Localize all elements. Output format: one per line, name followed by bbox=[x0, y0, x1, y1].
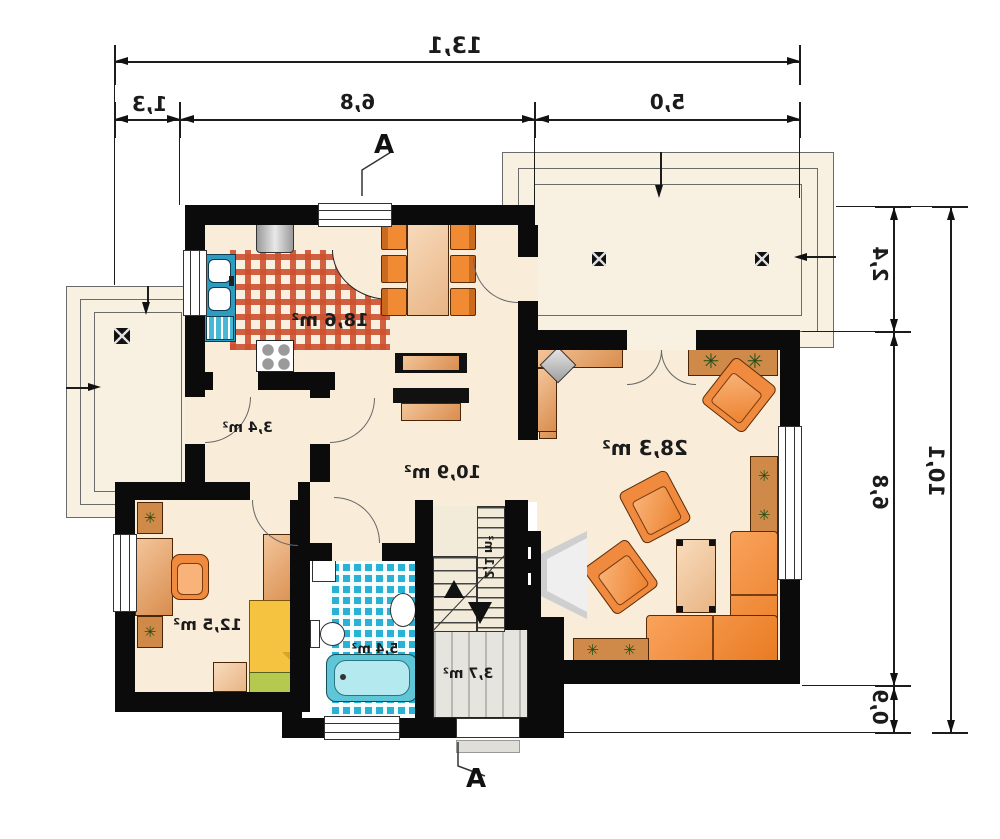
dining-chair bbox=[450, 288, 476, 316]
plant-box: ✳ bbox=[137, 502, 163, 534]
living-area-label: 28,3 m² bbox=[595, 436, 695, 460]
dim-line-top-segments bbox=[115, 119, 800, 121]
dim-line-right-segments bbox=[893, 207, 895, 733]
door-gap bbox=[332, 543, 382, 561]
dim-arrow bbox=[115, 57, 128, 65]
plant-icon: ✳ bbox=[623, 643, 636, 658]
stair-landing bbox=[433, 506, 477, 558]
arrow-left-icon bbox=[794, 253, 807, 261]
dim-arrow bbox=[167, 115, 180, 123]
dim-extension-line bbox=[802, 331, 875, 332]
bathtub-drain bbox=[340, 674, 346, 680]
sideboard-top bbox=[403, 356, 459, 370]
wall-living-top bbox=[535, 330, 627, 350]
dim-arrow bbox=[522, 115, 535, 123]
stair-up-arrow-icon bbox=[444, 580, 464, 598]
dim-top-segment-label: 5,0 bbox=[630, 90, 705, 114]
table-knob bbox=[677, 540, 683, 546]
stair-down-arrow-icon bbox=[468, 602, 492, 624]
bedroom-area-label: 12,5 m² bbox=[160, 615, 255, 634]
vestibule-area-label: 3,7 m² bbox=[432, 666, 504, 682]
dim-arrow bbox=[947, 720, 955, 733]
dim-top-segment-label: 1,3 bbox=[122, 92, 177, 116]
wall-wing-bottom bbox=[115, 692, 302, 712]
dim-top-total-label: 13,1 bbox=[415, 34, 495, 59]
terrace-post-icon bbox=[592, 252, 606, 266]
window bbox=[318, 203, 392, 227]
plant-icon: ✳ bbox=[144, 625, 157, 640]
stairs-area-label: 2,1 m² bbox=[482, 535, 496, 579]
dim-line-top-total bbox=[115, 61, 800, 63]
floor-plan: ✳ ✳ ✳ ✳ ✳ ✳ ✳ ✳ bbox=[0, 0, 1000, 839]
hall-floor bbox=[310, 482, 332, 543]
dim-arrow bbox=[890, 333, 898, 346]
wall-living-top bbox=[696, 330, 800, 350]
dim-right-segment-label: 2,4 bbox=[868, 239, 892, 289]
table-knob bbox=[709, 606, 715, 612]
window bbox=[183, 250, 207, 316]
faucet-icon bbox=[229, 276, 234, 286]
door-gap bbox=[213, 372, 258, 390]
plant-box: ✳ ✳ bbox=[573, 638, 649, 662]
terrace-arrow-line bbox=[660, 152, 662, 186]
terrace-post-icon bbox=[755, 252, 769, 266]
coffee-table bbox=[676, 539, 716, 613]
cabinet bbox=[393, 388, 469, 403]
dining-chair bbox=[381, 255, 407, 283]
stove bbox=[256, 340, 294, 372]
section-marker-bottom: A bbox=[466, 764, 486, 794]
arrow-down-icon bbox=[655, 185, 663, 198]
dim-extension-line bbox=[534, 138, 535, 205]
dim-arrow bbox=[890, 207, 898, 220]
dim-line-right-total bbox=[950, 207, 952, 733]
wall-bathroom-right bbox=[415, 500, 433, 720]
arrow-right-icon bbox=[88, 383, 101, 391]
sofa-seam bbox=[730, 594, 778, 596]
dim-tick bbox=[114, 45, 116, 85]
section-marker-top: A bbox=[374, 130, 394, 160]
hall-area-label: 10,9 m² bbox=[390, 462, 495, 483]
dim-arrow bbox=[947, 207, 955, 220]
terrace-right-floor bbox=[534, 184, 802, 316]
dim-right-segment-label: 6,8 bbox=[868, 467, 892, 517]
cabinet-top bbox=[401, 403, 461, 421]
dim-arrow bbox=[890, 319, 898, 332]
dim-tick bbox=[799, 45, 801, 85]
window bbox=[324, 716, 400, 740]
dining-chair bbox=[450, 222, 476, 250]
dim-arrow bbox=[115, 115, 128, 123]
dim-right-segment-label: 0,9 bbox=[868, 682, 892, 732]
terrace-left-floor bbox=[94, 312, 182, 492]
wall-kitchen-bottom bbox=[185, 372, 335, 390]
dim-arrow bbox=[536, 115, 549, 123]
door-gap bbox=[310, 398, 330, 444]
wall-living-bottom bbox=[535, 660, 800, 684]
window bbox=[113, 534, 137, 612]
plant-icon: ✳ bbox=[758, 469, 771, 484]
dim-extension-line bbox=[114, 85, 115, 285]
dining-table bbox=[407, 218, 449, 316]
sofa-seam bbox=[712, 615, 714, 663]
arrow-down-icon bbox=[142, 302, 150, 315]
terrace-post-icon bbox=[114, 328, 130, 344]
corridor-area-label: 3,4 m² bbox=[205, 420, 290, 436]
window bbox=[778, 426, 802, 580]
door-gap bbox=[250, 482, 298, 500]
nightstand bbox=[213, 662, 247, 692]
dim-extension-line bbox=[179, 138, 180, 205]
kitchen-area-label: 18,6 m² bbox=[275, 310, 385, 331]
wall-left-upper bbox=[185, 205, 205, 490]
toilet-tank bbox=[310, 620, 320, 648]
plant-icon: ✳ bbox=[758, 508, 771, 523]
entrance-door bbox=[456, 718, 520, 738]
door-gap bbox=[185, 397, 205, 444]
plant-box: ✳ ✳ bbox=[750, 456, 778, 536]
sink-bowl bbox=[208, 259, 231, 283]
dim-extension-line bbox=[799, 138, 800, 198]
washbasin bbox=[390, 593, 416, 627]
dim-right-total-label: 10,1 bbox=[924, 447, 948, 497]
french-door-gap bbox=[627, 330, 696, 350]
bathroom-area-label: 5,4 m² bbox=[335, 642, 415, 657]
terrace-arrow-line bbox=[806, 256, 836, 258]
table-knob bbox=[709, 540, 715, 546]
dim-extension-line bbox=[836, 206, 932, 207]
plant-icon: ✳ bbox=[703, 351, 720, 371]
wall-stairs-right bbox=[505, 500, 528, 630]
sink-drainer bbox=[206, 316, 234, 340]
bedroom-desk bbox=[135, 538, 173, 616]
terrace-arrow-line bbox=[66, 387, 90, 389]
office-chair bbox=[171, 554, 209, 600]
sink-bowl bbox=[208, 287, 231, 311]
dim-arrow bbox=[181, 115, 194, 123]
plant-icon: ✳ bbox=[586, 643, 599, 658]
dim-arrow bbox=[787, 115, 800, 123]
dim-top-segment-label: 6,8 bbox=[320, 90, 395, 114]
dim-extension-line bbox=[802, 685, 875, 686]
table-knob bbox=[677, 606, 683, 612]
boiler bbox=[256, 221, 294, 253]
dim-extension-line bbox=[564, 732, 875, 733]
plant-icon: ✳ bbox=[144, 511, 157, 526]
door-gap bbox=[518, 257, 538, 301]
